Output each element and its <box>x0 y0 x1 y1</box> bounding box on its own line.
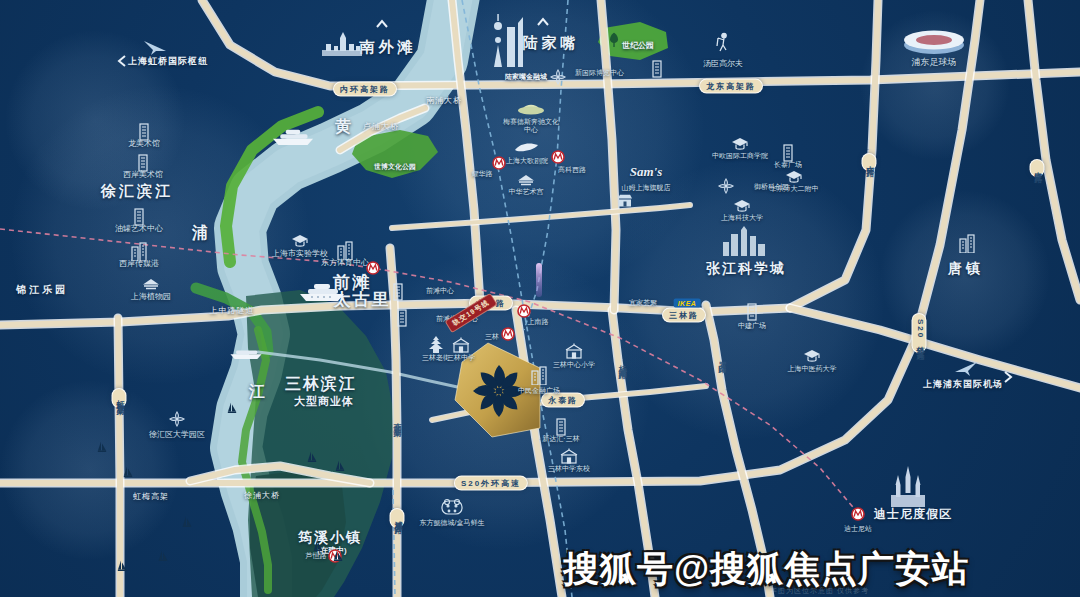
poi-label: 上海市实验学校 <box>272 249 328 259</box>
planeL-icon <box>141 38 167 56</box>
bridge-label: 上中路隧道 <box>210 306 255 316</box>
metro-station-icon <box>551 150 565 164</box>
road-name-capsule: S20外环高速 <box>912 313 927 353</box>
skyline-icon <box>721 226 767 256</box>
boat-icon <box>228 403 237 414</box>
poi-label: 中民金融广场 <box>518 387 560 395</box>
poi-label: 东方懿德城/盒马鲜生 <box>420 519 485 527</box>
tree-icon <box>608 33 620 48</box>
bund-icon <box>322 31 362 57</box>
poi-label: 三林中心小学 <box>553 361 595 369</box>
area-label: 筠溪小镇 <box>298 529 362 546</box>
diamond-icon <box>550 69 566 85</box>
gradcap-icon <box>731 137 749 151</box>
area-label: 锦江乐园 <box>16 284 68 296</box>
area-label: 三林滨江 <box>285 374 357 393</box>
building-icon <box>780 142 796 162</box>
boat-icon <box>314 541 323 552</box>
road-name-capsule: S20外环高速 <box>454 476 528 491</box>
building2-icon <box>336 240 354 260</box>
boat-icon <box>183 517 192 528</box>
poi-label: 三林中学 <box>447 354 475 362</box>
poi-label: 西岸传媒港 <box>119 259 159 269</box>
poi-label: 中建广场 <box>738 322 766 330</box>
disclaimer-text: 本图为区位示意图 仅供参考 <box>770 586 869 596</box>
boat-icon <box>118 561 127 572</box>
pavilion-icon <box>515 174 537 187</box>
castle-icon <box>886 465 930 509</box>
building-icon <box>131 206 147 226</box>
poi-label: 徐汇区大学园区 <box>149 430 205 440</box>
road-name-capsule: 浦星公路 <box>390 508 405 528</box>
metro-station-label: 上南路 <box>528 318 549 326</box>
ship-icon <box>298 280 346 302</box>
poi-label: 东方体育中心 <box>321 258 369 268</box>
area-label: 上海浦东国际机场 <box>923 379 1003 390</box>
boat-icon <box>124 467 133 478</box>
cruise-icon <box>271 126 315 146</box>
building2-icon <box>958 233 976 253</box>
watermark: 搜狐号@搜狐焦点广安站 <box>563 545 969 594</box>
school-icon <box>560 448 578 464</box>
boat-icon <box>98 442 107 453</box>
bridge-label: 虹梅高架 <box>133 492 169 502</box>
glowtower-icon <box>534 263 544 297</box>
road-name-capsule: 申江路 <box>1030 159 1045 177</box>
pavilion-icon <box>140 278 162 291</box>
poi-label: 汤臣高尔夫 <box>703 59 743 69</box>
building-icon <box>553 416 569 436</box>
bridge-label: 南浦大桥 <box>426 96 462 106</box>
poi-label: 长泰广场 <box>774 161 802 169</box>
yacht-icon <box>229 344 263 360</box>
poi-label: 浦东足球场 <box>912 57 957 68</box>
bridge-label: 卢浦大桥 <box>363 122 399 132</box>
store-icon <box>617 195 633 208</box>
poi-label: 油罐艺术中心 <box>115 224 163 234</box>
gradcap-icon <box>291 234 309 248</box>
poi-label: 前滩中心 <box>426 287 454 295</box>
metro-station-icon <box>851 507 865 521</box>
poi-label: 新国际博览中心 <box>575 69 624 77</box>
stadium-icon <box>902 28 966 56</box>
diamond-icon <box>718 178 734 194</box>
poi-label: 上海大歌剧院 <box>506 157 548 165</box>
lujiazui-icon <box>490 13 526 67</box>
area-label: 世纪公园 <box>622 41 654 51</box>
metro-station-icon <box>501 327 515 341</box>
chevR-icon <box>1003 370 1013 384</box>
pagoda-icon <box>428 336 444 354</box>
poi-label: 御桥科创园 <box>754 183 789 191</box>
building-icon <box>394 307 410 327</box>
poi-label: 中华艺术宫 <box>509 188 544 196</box>
planeR-icon <box>954 359 980 377</box>
area-label: 徐汇滨江 <box>101 182 173 200</box>
poi-label: 三林中学东校 <box>548 465 590 473</box>
metro-station-label: 高科西路 <box>558 166 586 174</box>
road-name-text: 南北高架 <box>391 416 402 424</box>
chevL-icon <box>117 54 127 68</box>
map-canvas: 黄浦江南外滩陆家嘴徐汇滨江锦江乐园前滩太古里三林滨江大型商业体筠溪小镇(在建中)… <box>0 0 1080 597</box>
building-icon <box>390 281 406 301</box>
gradcap-icon <box>733 199 751 213</box>
road-name-capsule: 中环路 <box>862 153 877 171</box>
road-name-capsule: 虹梅高架 <box>112 388 127 408</box>
area-label: 上海虹桥国际枢纽 <box>128 56 208 67</box>
metro-station-icon <box>366 261 380 275</box>
road-name-capsule: 龙东高架路 <box>699 79 763 94</box>
area-label: 陆家嘴 <box>523 34 580 52</box>
boat-icon <box>159 551 168 562</box>
map-overlay: 黄浦江南外滩陆家嘴徐汇滨江锦江乐园前滩太古里三林滨江大型商业体筠溪小镇(在建中)… <box>0 0 1080 597</box>
building2-icon <box>130 241 148 261</box>
poi-label: 上海植物园 <box>131 292 171 302</box>
river-name-char: 浦 <box>192 223 208 242</box>
golfer-icon <box>714 32 732 58</box>
road-name-text: 罗山路 <box>716 355 727 361</box>
ikea-label: 宜家荟聚 <box>629 299 657 307</box>
river-name-char: 江 <box>249 382 265 401</box>
poi-label: 三林老街 <box>422 354 450 362</box>
bridge-label: 徐浦大桥 <box>244 491 280 501</box>
poi-label: 上海中医药大学 <box>788 365 837 373</box>
metro-station-icon <box>517 304 531 318</box>
whale-icon <box>514 141 540 153</box>
metro-station-label: 迪士尼站 <box>844 525 872 533</box>
sams-club-label: 山姆上海旗舰店 <box>622 184 671 192</box>
building-icon <box>649 58 665 78</box>
chevU-icon <box>375 19 389 29</box>
poi-label: 新达汇·三林 <box>542 435 579 443</box>
road-name-capsule: 内环高架路 <box>333 82 397 97</box>
hippo-icon <box>439 497 465 517</box>
area-label: 世博文化公园 <box>374 163 416 171</box>
poi-label: 西岸美术馆 <box>123 170 163 180</box>
boat-icon <box>308 452 317 463</box>
area-label: 唐镇 <box>948 260 984 277</box>
metro-station-label: 耀华路 <box>472 170 493 178</box>
gradcap-icon <box>803 349 821 363</box>
road-name-capsule: 三林路 <box>662 308 706 323</box>
poi-label: 中欧国际工商学院 <box>712 152 768 160</box>
building-icon <box>136 121 152 141</box>
diamond-icon <box>169 411 185 427</box>
area-label: 陆家嘴金融城 <box>505 73 547 81</box>
poi-label: 上海科技大学 <box>721 214 763 222</box>
building-icon <box>744 301 760 321</box>
building-icon <box>135 152 151 172</box>
road-name-text: 杨高南路 <box>616 359 627 367</box>
saucer-icon <box>517 103 545 116</box>
poi-label: 梅赛德斯奔驰文化中心 <box>500 118 562 135</box>
area-label: 大型商业体 <box>294 395 354 408</box>
metro-station-label: 芦恒路 <box>306 552 327 560</box>
poi-label: 龙美术馆 <box>128 139 160 149</box>
boat-icon <box>334 551 343 562</box>
river-name-char: 黄 <box>335 117 351 136</box>
school-icon <box>452 337 470 353</box>
metro-station-label: 三林 <box>485 333 499 341</box>
area-label: 张江科学城 <box>706 260 786 277</box>
metro-station-icon <box>492 156 506 170</box>
boat-icon <box>336 461 345 472</box>
area-label: 南外滩 <box>360 38 417 56</box>
ikea-badge: IKEA <box>674 299 701 308</box>
chevU-icon <box>536 17 550 27</box>
school-icon <box>565 343 583 359</box>
building2-icon <box>530 365 548 385</box>
sams-club-logo: Sam's <box>630 164 663 180</box>
